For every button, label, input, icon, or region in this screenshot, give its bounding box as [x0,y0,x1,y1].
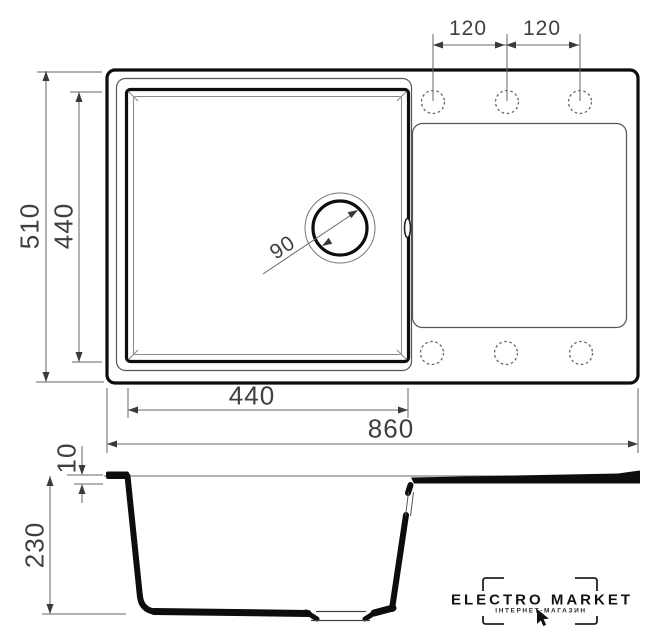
dim-label-860: 860 [368,414,414,445]
dim-label-120-right: 120 [523,17,561,41]
plan-view [107,34,638,383]
drain-boss-lines [311,612,370,621]
drain-recess-circle [305,193,375,263]
drainer-area-line [413,124,627,328]
drain-dimension-arrows [322,210,358,246]
tap-hole [421,342,444,365]
overflow-slot [405,219,411,238]
bowl-corner-chamfers [129,92,407,360]
sink-technical-drawing: 510 440 120 120 90 440 860 10 230 ELECTR… [0,0,662,640]
tap-holes [421,91,593,365]
bowl-profile [128,476,411,619]
dim-label-440-bottom: 440 [229,381,275,412]
dim-label-440-left: 440 [49,203,80,249]
drawing-linework [0,0,662,640]
dim-label-120-left: 120 [449,17,487,41]
sink-outer-edge [107,70,638,383]
tap-hole-stems [433,34,580,101]
drainer-deck-profile [411,471,640,484]
bowl-inner-slope-line [134,97,402,355]
drain-hole-circle [313,201,367,255]
dim-label-510: 510 [15,203,46,249]
dim-label-230-depth: 230 [20,522,51,568]
tap-hole [570,342,593,365]
tap-hole [495,342,518,365]
dim-label-10-rim: 10 [52,443,83,474]
logo-tagline-text: ІНТЕРНЕТ-МАГАЗИН [495,608,586,615]
logo-brand-text: ELECTRO MARKET [451,592,633,609]
